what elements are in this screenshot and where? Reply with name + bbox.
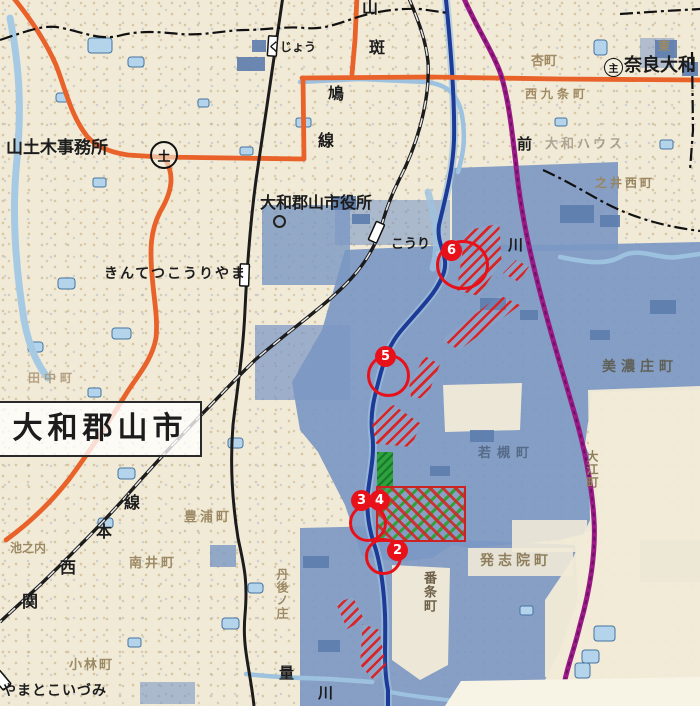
daiwa-house-label: 大和ハウス <box>545 138 625 151</box>
civil-office-symbol: 土 <box>150 141 178 169</box>
mae-label: 前 <box>517 137 532 152</box>
yamatokoizumi-station-label: やまとこいづみ <box>2 684 107 698</box>
tangonosho-label: 丹後ノ庄 <box>276 568 288 620</box>
higashi-label: 東 <box>658 40 670 52</box>
kujo-station-label: くじょう <box>268 41 316 53</box>
kansai-line-char-sen: 線 <box>124 495 140 511</box>
road-char-hato: 鳩 <box>328 86 344 102</box>
kansai-line-char-kan: 関 <box>22 594 38 610</box>
city-name-box: 大和郡山市 <box>0 401 202 457</box>
kansai-line-char-sai: 西 <box>60 560 76 576</box>
banjo-cho-label: 番条町 <box>422 571 435 613</box>
ryo-label: 量 <box>279 666 294 681</box>
route-class-symbol: 主 <box>604 58 623 77</box>
road-char-yama: 山 <box>362 0 378 16</box>
nishi-kujo-cho-label: 西九条町 <box>525 88 589 100</box>
road-char-han: 斑 <box>369 40 385 56</box>
city-hall-symbol <box>273 215 286 228</box>
city-hall-label: 大和郡山市役所 <box>260 195 372 211</box>
noii-nishi-cho-label: 之井西町 <box>595 177 655 189</box>
marker-badge-5: 5 <box>375 346 396 367</box>
road-char-sen: 線 <box>318 133 334 149</box>
minosho-cho-label: 美濃庄町 <box>602 360 678 374</box>
wakatsuki-cho-label: 若槻町 <box>478 447 535 460</box>
anzu-cho-label: 杏町 <box>531 55 557 68</box>
civil-engineering-office-label: 山土木事務所 <box>6 140 108 157</box>
hasshiin-cho-label: 発志院町 <box>480 554 552 568</box>
marker-badge-2: 2 <box>387 540 408 561</box>
route-name-label: 奈良大和 <box>624 57 696 75</box>
river-kawa-upper-label: 川 <box>508 238 523 253</box>
marker-badge-6: 6 <box>441 240 462 261</box>
kobayashi-cho-label: 小林町 <box>69 659 114 672</box>
blank-scan-corner <box>445 677 700 706</box>
marker-badge-4: 4 <box>369 490 390 511</box>
oe-cho-label: 大江町 <box>586 450 598 489</box>
river-kawa-lower-label: 川 <box>318 686 333 701</box>
toyoura-cho-label: 豊浦町 <box>184 511 232 524</box>
minamii-cho-label: 南井町 <box>129 557 177 570</box>
scanned-flood-map: 6 5 3 4 2 山土木事務所 土 くじょう 山 斑 鳩 線 主 奈良大和 東… <box>0 0 700 706</box>
city-name-label: 大和郡山市 <box>13 414 188 444</box>
kintetsu-koriyama-station-label: きんてつこうりやま <box>104 267 247 281</box>
tanaka-cho-label: 田中町 <box>28 372 76 384</box>
kouri-label: こうり <box>391 238 430 251</box>
kansai-line-char-hon: 本 <box>96 524 112 540</box>
ikenouchi-label: 池之内 <box>10 542 46 554</box>
crosshatch-area-green-red <box>376 486 466 542</box>
